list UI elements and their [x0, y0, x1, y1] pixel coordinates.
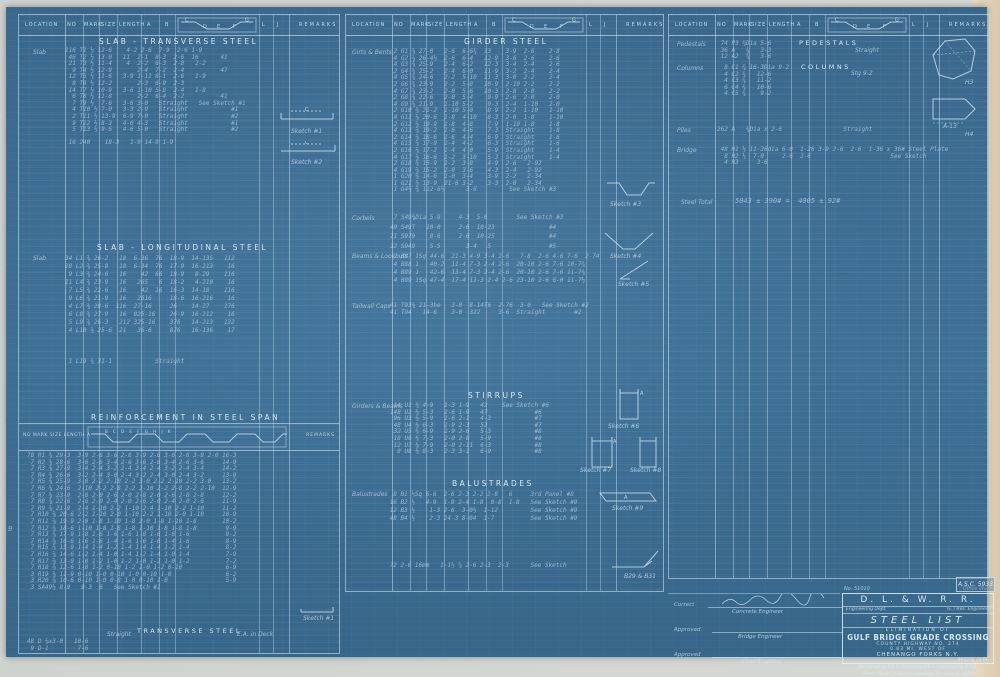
- row-group-girts: Girts & Bents: [352, 49, 392, 56]
- svg-text:C: C: [185, 18, 190, 24]
- svg-text:F: F: [560, 24, 564, 30]
- h4-label: H4: [965, 131, 973, 138]
- svg-text:E: E: [217, 24, 221, 30]
- sketch-7-icon: A: [584, 433, 618, 469]
- role-concrete-engineer: Concrete Engineer: [732, 609, 783, 615]
- dept-line: Engineering Dept. G. / Res. Engineers: [843, 607, 993, 614]
- section-title-transverse: SLAB - TRANSVERSE STEEL: [99, 37, 258, 46]
- doc-title: STEEL LIST: [843, 614, 993, 628]
- col-size: SIZE: [428, 22, 443, 28]
- svg-text:G: G: [572, 18, 577, 24]
- col-no: NO: [717, 22, 727, 28]
- role-bridge-engineer: Bridge Engineer: [738, 634, 782, 640]
- balustrade-end-sketch-label: B29 & B31: [624, 573, 656, 580]
- section-title-girder: GIRDER STEEL: [464, 37, 548, 46]
- bent-bar-diagram-icon: C D E F G: [177, 17, 257, 33]
- col-remarks: REMARKS: [949, 22, 987, 28]
- row-group-slab-2: Slab: [33, 255, 46, 262]
- svg-text:E: E: [867, 24, 871, 30]
- sketch-9-icon: A: [594, 487, 660, 505]
- longitudinal-rows: 34 L1 ⅝ 26-2 18 6-36 76 18-9 14-135 112 …: [65, 255, 235, 335]
- section-title-columns: COLUMNS: [801, 63, 851, 71]
- col-l: L: [912, 22, 916, 28]
- columns-rows: 8 C1 ¾ 16-3Dia 9-2 4 C2 ¾ 12-6 4 C3 ¾ 11…: [717, 65, 789, 98]
- section-title-pedestals: PEDESTALS: [799, 39, 858, 47]
- approved-label-2: Approved: [674, 652, 701, 658]
- pedestals-note: Straight: [855, 47, 879, 54]
- section-title-longitudinal: SLAB - LONGITUDINAL STEEL: [97, 243, 268, 252]
- file-number: No. 51010: [844, 586, 870, 592]
- sketch-3-label: Sketch #3: [610, 201, 641, 208]
- correct-label: Correct: [674, 602, 694, 608]
- girder-rows: 2 G1 ⅝ 27-0 2-6 6-6¾ 13 3-9 2-6 2-8 4 G2…: [390, 49, 563, 194]
- col-length: LENGTH: [119, 22, 145, 28]
- railroad-name: D. L. & W. R. R.: [843, 594, 993, 607]
- svg-text:A: A: [640, 391, 644, 397]
- col-b: B: [815, 22, 819, 28]
- section-title-reinforcement: REINFORCEMENT IN STEEL SPAN: [91, 413, 280, 422]
- sketch-8-label: Sketch #8: [630, 467, 661, 474]
- reinforcement-rows: 78 R1 ⅝ 29-3 3-9 2-6 3-6 2-6 3-9 2-6 3-6…: [27, 453, 237, 591]
- col-l: L: [589, 22, 593, 28]
- col-a: A: [474, 22, 478, 28]
- col-b: B: [492, 22, 496, 28]
- sketch-4-icon: [601, 229, 657, 253]
- balustrades-rows2: 72 2-6 16mm 1-1½ ⅞ 2-6 2-3 2-3 See Sketc…: [386, 563, 567, 570]
- balustrades-rows: 8 B1 ½Sq 6-6 2-6 2-3 2-2 2-8 6 3rd Panel…: [386, 491, 577, 523]
- steel-total-label: Steel Total: [681, 199, 712, 206]
- footer-note-straight: Straight: [107, 631, 131, 638]
- sketch-5-label: Sketch #5: [618, 281, 649, 288]
- col-mark: MARK: [411, 22, 430, 28]
- col-remarks: REMARKS: [299, 22, 337, 28]
- row-group-piles: Piles: [677, 127, 691, 134]
- h4-dim: A-13: [943, 123, 957, 130]
- svg-text:A: A: [613, 439, 617, 445]
- svg-text:F: F: [233, 24, 237, 30]
- col-location: LOCATION: [25, 22, 58, 28]
- middle-table-panel: LOCATION NO MARK SIZE LENGTH A B L J REM…: [345, 14, 664, 592]
- credits-line: Designed by F.E.T. Traced by F.E.T. Chec…: [843, 663, 993, 671]
- row-group-bridge: Bridge: [677, 147, 697, 154]
- middle-table-header: LOCATION NO MARK SIZE LENGTH A B L J REM…: [346, 15, 663, 36]
- col-no: NO: [67, 22, 77, 28]
- col-size: SIZE: [751, 22, 766, 28]
- drawing-number-box: A.S.C. 5933: [956, 577, 995, 592]
- sketch-5-icon: [614, 257, 658, 283]
- sketch-9-label: Sketch #9: [612, 505, 643, 512]
- pedestals-rows: 74 P3 ¾Dia 5-6 36 A ¾ 3-3 12 A2 ¾ 3-6: [717, 41, 771, 61]
- right-table-panel: LOCATION NO MARK SIZE LENGTH A B L J REM…: [668, 14, 990, 579]
- svg-text:D: D: [853, 24, 858, 30]
- col-location: LOCATION: [352, 22, 385, 28]
- footer-title-transverse-steel: TRANSVERSE STEEL: [137, 627, 242, 635]
- svg-text:F: F: [883, 24, 887, 30]
- col-mark: MARK: [84, 22, 103, 28]
- signature-line-1: [708, 607, 842, 608]
- section-title-balustrades: BALUSTRADES: [452, 479, 534, 488]
- sketch-6-label: Sketch #6: [608, 423, 639, 430]
- left-table-panel: LOCATION NO MARK SIZE LENGTH A B L J REM…: [18, 14, 340, 654]
- sketch-7-label: Sketch #7: [580, 467, 611, 474]
- section-title-stirrups: STIRRUPS: [468, 391, 525, 400]
- title-block: D. L. & W. R. R. Engineering Dept. G. / …: [842, 593, 994, 664]
- signature-line-2: [712, 632, 842, 633]
- project-name: GULF BRIDGE GRADE CROSSING: [843, 633, 993, 642]
- reinforcement-header: NO MARK SIZE LENGTH A REMARKS B C D E F …: [19, 423, 339, 451]
- approvals-block: Correct Concrete Engineer Approved Bridg…: [668, 593, 840, 663]
- sheet-number-line: Sheet 10 of 12 Sheets Hoboken N.J. June …: [843, 671, 993, 677]
- svg-text:C: C: [305, 141, 309, 146]
- svg-text:E: E: [544, 24, 548, 30]
- zigzag-bar-diagram-icon: B C D E F G H J K: [87, 426, 287, 448]
- columns-note: Stg 9-2: [851, 70, 873, 77]
- col-b: B: [165, 22, 169, 28]
- res-engineers: G. / Res. Engineers: [947, 607, 990, 612]
- col-a: A: [797, 22, 801, 28]
- sketch-3-icon: [601, 177, 657, 201]
- signature-1: [718, 594, 828, 608]
- row-group-slab: Slab: [33, 49, 46, 56]
- sketch-8-icon: [634, 433, 664, 469]
- sketch-footer-label: Sketch #1: [303, 615, 334, 622]
- col-length: LENGTH: [769, 22, 795, 28]
- footer-note-deck: E.A. in Deck: [237, 631, 273, 638]
- blueprint-sheet: LOCATION NO MARK SIZE LENGTH A B L J REM…: [6, 7, 987, 657]
- stirrups-rows: 14 U1 ⅜ 4-9 1-3 1-9 42 See Sketch #6 148…: [390, 403, 549, 456]
- reinforcement-header-remarks: REMARKS: [306, 433, 335, 438]
- col-mark: MARK: [734, 22, 753, 28]
- svg-text:G: G: [895, 18, 900, 24]
- tailwall-rows: 41 T93⅜ 21-3he 3-0 8-14T6 2-76 3-0 See S…: [390, 303, 589, 316]
- col-l: L: [262, 22, 266, 28]
- sketch-2-icon: C: [277, 141, 341, 159]
- svg-text:D: D: [530, 24, 535, 30]
- svg-text:G: G: [245, 18, 250, 24]
- left-table-header: LOCATION NO MARK SIZE LENGTH A B L J REM…: [19, 15, 339, 36]
- reinforcement-header-labels: NO MARK SIZE LENGTH A: [23, 433, 91, 438]
- piles-row: 262 A ¾Dia x 2-6 Straight: [717, 127, 872, 134]
- col-length: LENGTH: [446, 22, 472, 28]
- col-j: J: [277, 22, 279, 28]
- sketch-1-icon: C: [277, 107, 341, 129]
- col-a: A: [147, 22, 151, 28]
- approved-label-1: Approved: [674, 627, 701, 633]
- h3-label: H3: [965, 79, 973, 86]
- col-location: LOCATION: [675, 22, 708, 28]
- bent-bar-diagram-icon: C D E F G: [827, 17, 907, 33]
- transverse-rows: 116 T1 ½ 12-6 4-2 2-6 7-9 2-6 1-9 46 T2 …: [65, 48, 246, 147]
- row-group-columns: Columns: [677, 65, 703, 72]
- svg-text:A: A: [624, 495, 628, 501]
- row-group-tailwall: Tailwall Caps: [352, 303, 391, 310]
- stray-mark: 9: [8, 525, 12, 533]
- longitudinal-single-row: 1 L19 ⅝ 31-1 Straight: [65, 359, 184, 366]
- role-chief-engineer: Chief Engineer: [742, 659, 782, 665]
- h3-shape-icon: [925, 33, 981, 85]
- col-j: J: [927, 22, 929, 28]
- col-remarks: REMARKS: [626, 22, 664, 28]
- bent-bar-diagram-icon: C D E F G: [504, 17, 584, 33]
- signature-line-3: [712, 657, 842, 658]
- row-group-balustrades: Balustrades: [352, 491, 388, 498]
- reinforcement-bottom-rows: 48 D ⅛x3-0 10-6 9 D-1 7-6: [27, 639, 88, 652]
- bridge-rows: 48 H1 ½ 11-26dia 6-0 1-26 3-9 2-6 2-6 1-…: [717, 147, 948, 167]
- svg-text:B C D E F G H J: B C D E F G H J K: [105, 429, 173, 434]
- sketch-2-label: Sketch #2: [291, 159, 322, 166]
- svg-text:C: C: [305, 107, 309, 113]
- sketch-1-label: Sketch #1: [291, 128, 322, 135]
- h4-shape-icon: [925, 91, 981, 127]
- corbels-rows: 7 S49⅜Dia 5-9 4-3 5-6 See Sketch #3 49 S…: [390, 213, 563, 251]
- beams-rows: 2 B87 1Sq 44-6 21-3 4-9 3-4 2-6 7-8 2-6 …: [390, 253, 600, 285]
- col-j: J: [604, 22, 606, 28]
- steel-total-value: 5043 ± 390# = 4005 ± 92#: [735, 197, 840, 205]
- svg-text:C: C: [512, 18, 517, 24]
- svg-text:D: D: [203, 24, 208, 30]
- engineering-dept: Engineering Dept.: [846, 607, 887, 612]
- col-no: NO: [394, 22, 404, 28]
- sketch-6-icon: A: [612, 387, 646, 423]
- row-group-pedestals: Pedestals: [677, 41, 706, 48]
- col-size: SIZE: [101, 22, 116, 28]
- balustrade-end-sketch-icon: [604, 543, 664, 573]
- row-group-corbels: Corbels: [352, 215, 375, 222]
- svg-text:C: C: [835, 18, 840, 24]
